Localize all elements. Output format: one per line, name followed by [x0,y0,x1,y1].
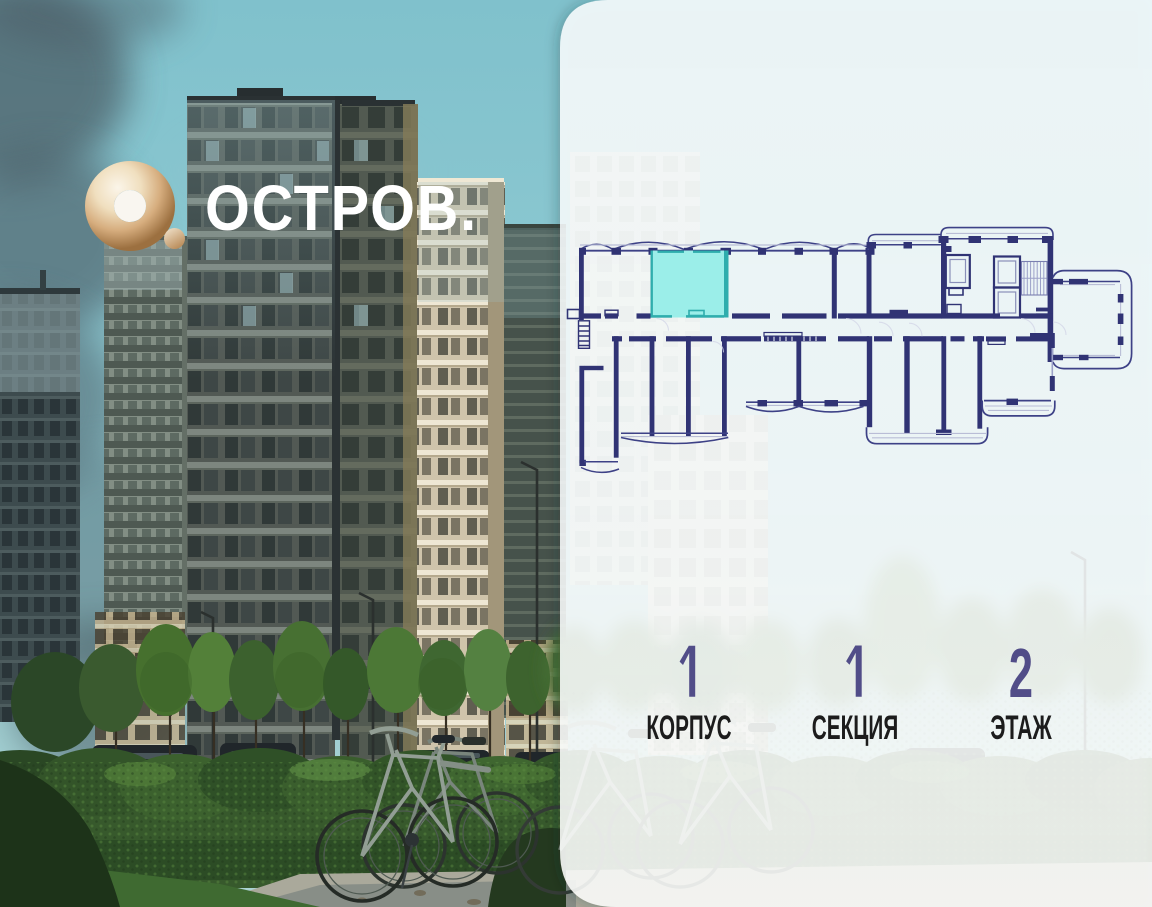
svg-text:ЭТАЖ: ЭТАЖ [990,709,1052,747]
svg-text:2: 2 [1009,634,1033,712]
svg-text:КОРПУС: КОРПУС [646,709,731,747]
svg-text:СЕКЦИЯ: СЕКЦИЯ [812,709,898,747]
